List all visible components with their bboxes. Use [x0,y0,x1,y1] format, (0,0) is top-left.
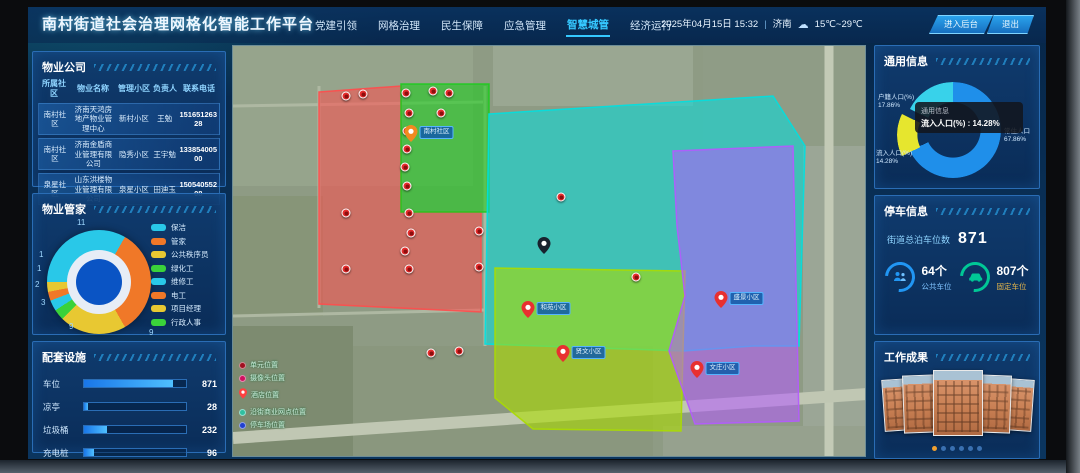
nav-item-1[interactable]: 党建引领 [314,15,358,36]
facility-value: 871 [193,379,217,389]
map-legend-item: 停车场位置 [239,420,306,430]
property-steward-panel: 物业管家 11112399 保洁管家公共秩序员绿化工维修工电工项目经理行政人事 [32,193,226,335]
exit-button[interactable]: 退出 [987,15,1034,34]
center-location-pin[interactable] [538,237,551,254]
unit-marker[interactable] [475,227,484,236]
unit-marker[interactable] [403,145,412,154]
unit-marker[interactable] [475,263,484,272]
public-parking-stat: 64个 公共车位 [885,262,951,292]
facility-bar-fill [84,449,94,456]
marker-label: 盛景小区 [730,292,764,305]
legend-label: 单元位置 [250,360,278,370]
legend-label: 保洁 [171,222,186,233]
legend-swatch [151,238,166,245]
carousel-dot[interactable] [950,446,955,451]
temperature-label: 15℃~29℃ [815,7,863,43]
public-parking-label: 公共车位 [921,281,951,292]
unit-marker[interactable] [342,209,351,218]
community-pin[interactable]: 南村社区 [405,125,454,142]
title-hatch-decoration [94,64,216,71]
legend-label: 电工 [171,290,186,301]
legend-item[interactable]: 管家 [151,235,209,249]
marker-label: 和苑小区 [537,302,571,315]
parking-info-panel: 停车信息 街道总泊车位数 871 64个 公共车位 [874,195,1040,335]
nav-item-4[interactable]: 应急管理 [503,15,547,36]
carousel-pagination [875,446,1039,451]
unit-marker[interactable] [401,163,410,172]
unit-marker[interactable] [437,109,446,118]
column-header: 管理小区 [116,83,152,95]
unit-marker[interactable] [427,349,436,358]
unit-marker[interactable] [359,90,368,99]
unit-marker[interactable] [342,92,351,101]
marker-label: 贤文小区 [572,346,606,359]
facility-bar-fill [84,403,88,410]
facility-value: 28 [193,402,217,412]
facility-value: 96 [193,448,217,458]
callout-value: 2 [35,280,39,289]
people-icon [879,256,921,298]
legend-item[interactable]: 公共秩序员 [151,248,209,262]
map-legend-item: 沿街商业网点位置 [239,407,306,417]
public-parking-value: 64个 [921,262,951,279]
facility-label: 垃圾桶 [43,424,77,436]
callout-value: 1 [37,264,41,273]
dashboard-screen: 南村街道社会治理网格化智能工作平台 党建引领网格治理民生保障应急管理智慧城管经济… [28,7,1046,459]
unit-marker[interactable] [455,347,464,356]
datetime-label: 2025年04月15日 15:32 [661,7,758,43]
slice-label-inflow: 流入人口(%) 14.28% [876,150,912,167]
table-header-row: 所属社区物业名称管理小区负责人联系电话 [38,78,220,100]
fixed-parking-value: 807个 [996,262,1028,279]
map-legend-item: 酒店位置 [239,386,306,404]
parking-total-label: 街道总泊车位数 [887,233,950,246]
legend-swatch [151,305,166,312]
legend-swatch [151,319,166,326]
unit-marker[interactable] [445,89,454,98]
facility-label: 车位 [43,378,77,390]
unit-marker[interactable] [405,209,414,218]
car-icon [954,256,996,298]
grid-map[interactable]: 和苑小区盛景小区文庄小区贤文小区南村社区 单元位置摄像头位置酒店位置沿街商业网点… [232,45,866,457]
city-label: 济南 [773,7,792,43]
unit-marker[interactable] [401,247,410,256]
parking-total: 街道总泊车位数 871 [887,230,988,248]
cell-company: 济南天鸿房地产物业管理中心 [71,104,116,134]
zone-green[interactable] [401,84,489,212]
header: 南村街道社会治理网格化智能工作平台 党建引领网格治理民生保障应急管理智慧城管经济… [28,7,1046,43]
tooltip-title: 通用信息 [921,106,1017,116]
slice-label-registered: 户籍人口(%) 17.86% [878,94,914,111]
facility-row: 凉亭28 [43,395,217,418]
cell-community: 南村社区 [39,109,71,130]
property-company-panel: 物业公司 所属社区物业名称管理小区负责人联系电话南村社区济南天鸿房地产物业管理中… [32,51,226,187]
panel-title: 停车信息 [884,203,928,219]
facility-bar-track [83,402,187,411]
carousel-dot[interactable] [932,446,937,451]
legend-label: 沿街商业网点位置 [250,407,306,417]
map-legend-item: 单元位置 [239,360,306,370]
legend-item[interactable]: 行政人事 [151,316,209,330]
nav-item-3[interactable]: 民生保障 [440,15,484,36]
facilities-panel: 配套设施 车位871凉亭28垃圾桶232充电桩96 [32,341,226,453]
unit-marker[interactable] [405,109,414,118]
legend-label: 管家 [171,236,186,247]
legend-label: 绿化工 [171,263,194,274]
parking-stats: 64个 公共车位 807个 固定车位 [881,262,1033,292]
facility-bar-fill [84,426,107,433]
title-hatch-decoration [936,354,1030,361]
cell-phone: 13385400500 [177,144,219,165]
unit-marker[interactable] [403,182,412,191]
legend-swatch [151,265,166,272]
nav-item-5[interactable]: 智慧城管 [566,14,610,37]
header-status: 2025年04月15日 15:32 | 济南 ☁ 15℃~29℃ [661,7,863,43]
facility-bar-track [83,379,187,388]
property-company-table: 所属社区物业名称管理小区负责人联系电话南村社区济南天鸿房地产物业管理中心新村小区… [38,78,220,208]
legend-swatch [151,251,166,258]
work-results-panel: 工作成果 [874,341,1040,459]
facility-bar-track [83,448,187,457]
cell-manager: 王勉 [152,113,178,124]
carousel-dot[interactable] [941,446,946,451]
facility-label: 充电桩 [43,447,77,459]
unit-marker[interactable] [632,273,641,282]
legend-dot [239,375,246,382]
legend-item[interactable]: 维修工 [151,275,209,289]
page-title: 南村街道社会治理网格化智能工作平台 [42,7,314,43]
general-info-panel: 通用信息 通用信息 流入人口(%) : 14.28% 户籍人口(%) 17.86… [874,45,1040,189]
cell-estate: 新村小区 [116,113,152,124]
column-header: 联系电话 [178,83,220,95]
column-header: 负责人 [152,83,178,95]
zone-purple[interactable] [669,146,799,424]
unit-marker[interactable] [405,265,414,274]
labeled-marker[interactable]: 贤文小区 [557,345,606,362]
cloud-icon: ☁ [798,7,809,43]
title-hatch-decoration [936,58,1030,65]
legend-label: 停车场位置 [250,420,285,430]
fixed-parking-label: 固定车位 [996,281,1028,292]
separator: | [764,7,766,43]
legend-label: 行政人事 [171,317,201,328]
legend-dot [239,422,246,429]
unit-marker[interactable] [407,229,416,238]
legend-label: 酒店位置 [251,390,279,400]
facility-bar-track [83,425,187,434]
unit-marker[interactable] [342,265,351,274]
callout-value: 11 [77,218,85,227]
labeled-marker[interactable]: 和苑小区 [522,301,571,318]
fixed-parking-stat: 807个 固定车位 [960,262,1028,292]
legend-swatch [151,278,166,285]
wall-strip [1066,0,1080,473]
parking-total-value: 871 [958,230,988,248]
unit-marker[interactable] [429,87,438,96]
labeled-marker[interactable]: 文庄小区 [691,361,740,378]
legend-swatch [151,292,166,299]
marker-label: 文庄小区 [706,362,740,375]
chart-tooltip: 通用信息 流入人口(%) : 14.28% [915,102,1023,133]
community-label: 南村社区 [420,126,454,139]
labeled-marker[interactable]: 盛景小区 [715,291,764,308]
tooltip-value: 流入人口(%) : 14.28% [921,118,1017,129]
title-hatch-decoration [94,206,216,213]
title-hatch-decoration [94,354,216,361]
panel-title: 物业管家 [42,201,86,217]
map-legend: 单元位置摄像头位置酒店位置沿街商业网点位置停车场位置 [239,360,306,430]
facilities-bars: 车位871凉亭28垃圾桶232充电桩96 [43,372,217,459]
column-header: 所属社区 [38,78,70,100]
table-row[interactable]: 南村社区济南天鸿房地产物业管理中心新村小区王勉15165126328 [38,103,220,135]
facility-label: 凉亭 [43,401,77,413]
photo-carousel[interactable] [879,370,1035,442]
facility-row: 垃圾桶232 [43,418,217,441]
callout-value: 1 [39,250,43,259]
legend-label: 摄像头位置 [250,373,285,383]
cell-manager: 王宇勉 [152,149,178,160]
header-nav: 党建引领网格治理民生保障应急管理智慧城管经济运行 [314,7,673,43]
panel-title: 通用信息 [884,53,928,69]
desk-bezel [0,460,1080,473]
legend-label: 项目经理 [171,303,201,314]
callout-value: 9 [149,328,153,337]
carousel-dot[interactable] [968,446,973,451]
carousel-dot[interactable] [959,446,964,451]
panel-title: 工作成果 [884,349,928,365]
enter-backend-button[interactable]: 进入后台 [929,15,993,34]
nav-item-2[interactable]: 网格治理 [377,15,421,36]
facility-bar-fill [84,380,173,387]
unit-marker[interactable] [402,89,411,98]
header-buttons: 进入后台 退出 [935,15,1034,34]
legend-item[interactable]: 电工 [151,289,209,303]
legend-swatch [151,224,166,231]
unit-marker[interactable] [557,193,566,202]
dashboard-photo: 南村街道社会治理网格化智能工作平台 党建引领网格治理民生保障应急管理智慧城管经济… [0,0,1080,473]
legend-label: 公共秩序员 [171,249,209,260]
facility-row: 车位871 [43,372,217,395]
legend-item[interactable]: 项目经理 [151,302,209,316]
panel-title: 物业公司 [42,59,86,75]
facility-row: 充电桩96 [43,441,217,459]
cell-estate: 隐秀小区 [116,149,152,160]
callout-value: 3 [41,298,45,307]
stewards-legend: 保洁管家公共秩序员绿化工维修工电工项目经理行政人事 [151,221,209,329]
title-hatch-decoration [936,208,1030,215]
legend-dot [239,409,246,416]
legend-item[interactable]: 绿化工 [151,262,209,276]
carousel-photo-active[interactable] [933,370,983,436]
carousel-dot[interactable] [977,446,982,451]
legend-dot [239,362,246,369]
map-legend-item: 摄像头位置 [239,373,306,383]
cell-community: 南村社区 [39,144,71,165]
callout-value: 9 [69,322,73,331]
cell-company: 济南金盾商业管理有限公司 [71,139,116,169]
stewards-donut-chart[interactable] [47,230,151,334]
pin-icon [239,386,247,404]
panel-title: 配套设施 [42,349,86,365]
legend-item[interactable]: 保洁 [151,221,209,235]
table-row[interactable]: 南村社区济南金盾商业管理有限公司隐秀小区王宇勉13385400500 [38,138,220,170]
cell-phone: 15165126328 [177,109,219,130]
facility-value: 232 [193,425,217,435]
legend-label: 维修工 [171,276,194,287]
column-header: 物业名称 [70,83,116,95]
